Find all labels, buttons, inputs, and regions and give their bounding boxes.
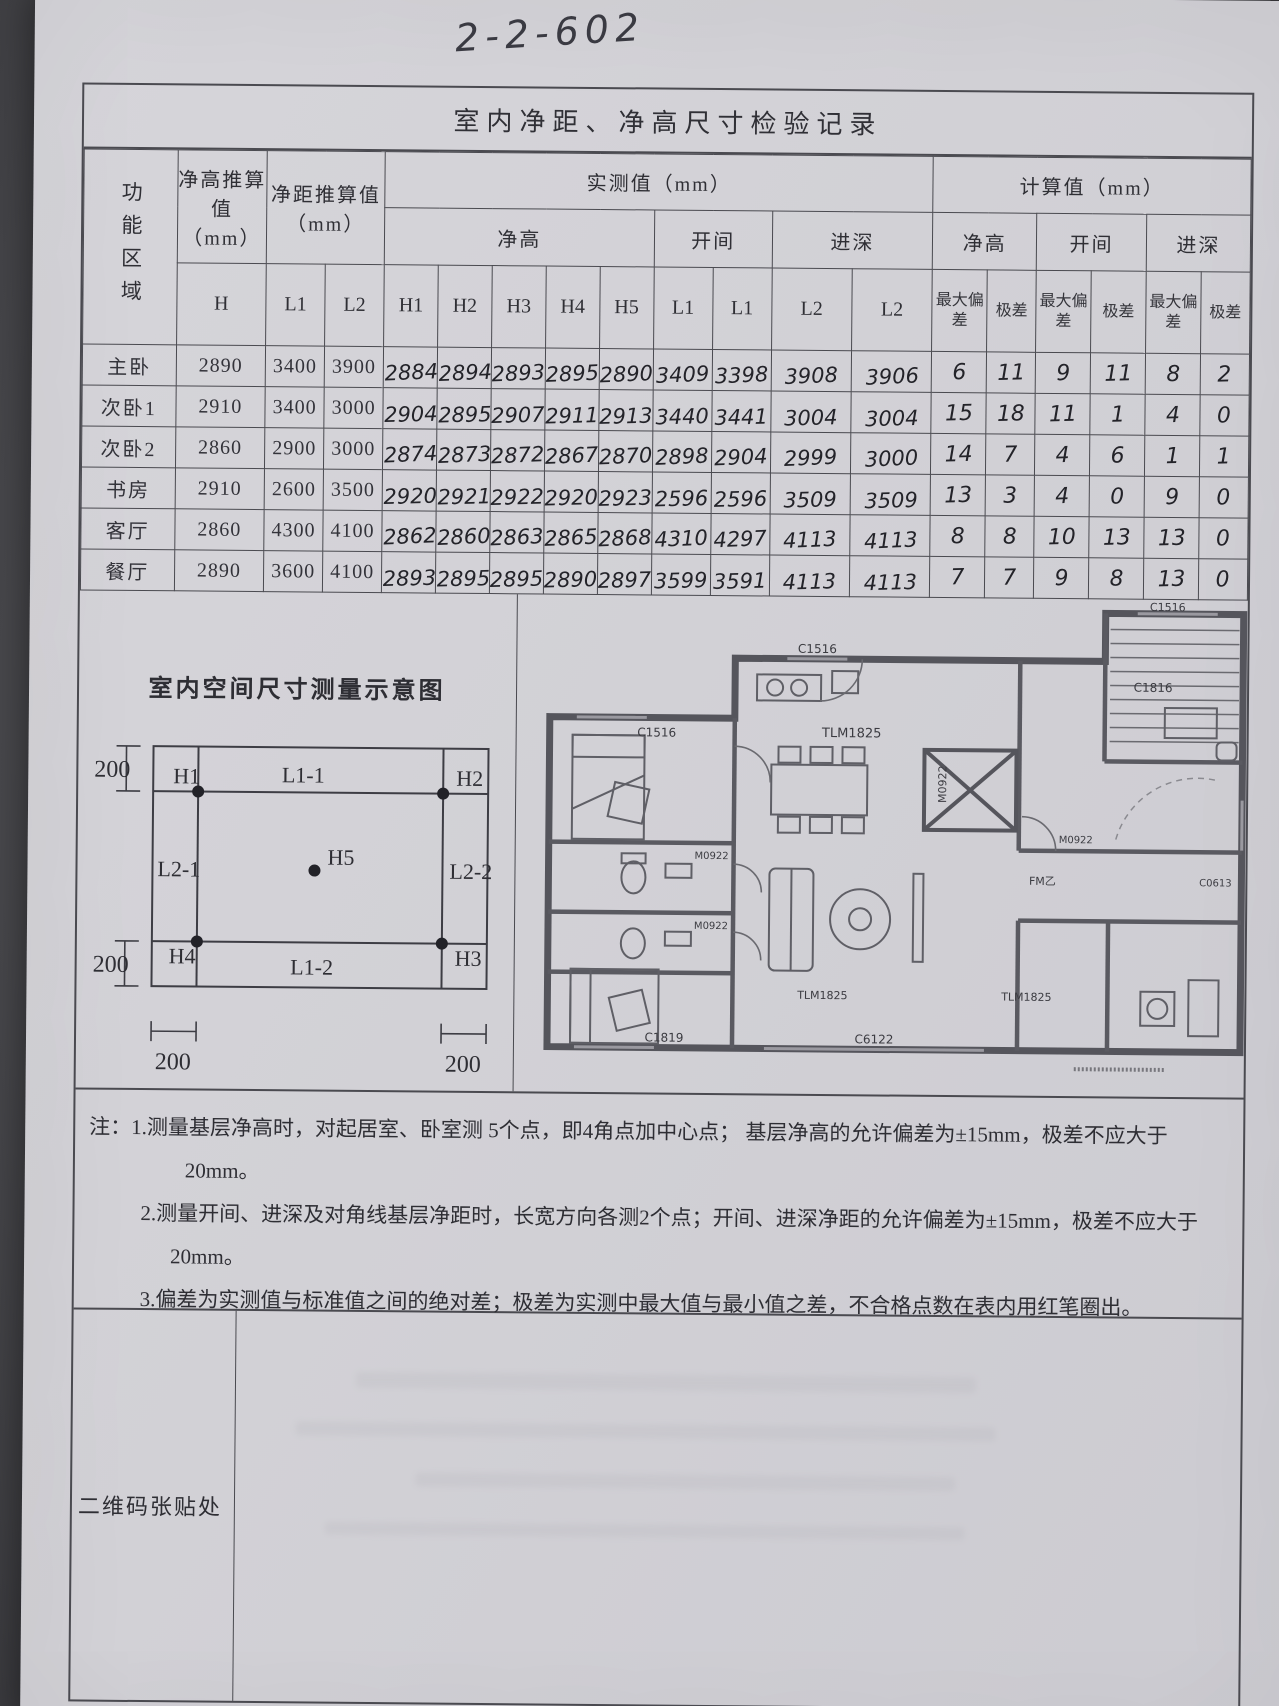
header-range-js: 极差 <box>1200 272 1250 354</box>
cell-calc5: 13 <box>1143 517 1199 559</box>
cell-area: 次卧2 <box>81 426 175 468</box>
plan-label-tlm1825-living: TLM1825 <box>796 989 847 1002</box>
middle-section: 室内空间尺寸测量示意图 <box>76 590 1248 1097</box>
cell-js2: 3004 <box>851 396 932 439</box>
coffee-table <box>830 889 891 950</box>
cell-h: 2860 <box>174 509 264 551</box>
cell-calc2: 7 <box>984 556 1034 598</box>
plan-label-c1816: C1816 <box>1134 681 1173 695</box>
cell-h3: 2893 <box>491 351 547 394</box>
header-l-est: 净距推算值（mm） <box>266 151 385 265</box>
measurement-diagram-cell: 室内空间尺寸测量示意图 <box>76 590 518 1091</box>
cell-h2: 2895 <box>435 557 490 599</box>
kitchen-counter <box>757 670 858 701</box>
header-maxdev-kj: 最大偏差 <box>1036 270 1092 352</box>
cell-l2: 3500 <box>323 469 382 511</box>
header-measured: 实测值（mm） <box>385 152 934 213</box>
cell-calc6: 2 <box>1200 353 1250 395</box>
cell-area: 书房 <box>81 467 175 509</box>
cell-kj1: 3440 <box>652 394 712 437</box>
header-H3: H3 <box>491 266 546 348</box>
cell-l1: 2900 <box>265 428 324 470</box>
header-calc-depth: 进深 <box>1146 214 1250 272</box>
notes-section: 注：1.测量基层净高时，对起居室、卧室测 5个点，即4角点加中心点； 基层净高的… <box>74 1087 1244 1317</box>
cell-calc5: 8 <box>1145 353 1201 395</box>
cell-calc2: 11 <box>986 351 1036 393</box>
form-title: 室内净距、净高尺寸检验记录 <box>453 100 882 141</box>
cell-h2: 2895 <box>437 393 492 435</box>
header-measured-bay: 开间 <box>654 210 772 268</box>
cell-area: 主卧 <box>82 344 176 386</box>
cell-h5: 2870 <box>598 434 654 477</box>
diagram-label-h4: H4 <box>169 943 196 968</box>
header-h-est: 净高推算值（mm） <box>177 150 267 264</box>
cell-h4: 2911 <box>544 394 599 436</box>
diagram-dim-top-left: 200 <box>94 757 130 783</box>
cell-calc5: 1 <box>1144 435 1200 477</box>
cell-kj1: 4310 <box>651 516 712 560</box>
cell-l1: 3600 <box>264 551 323 593</box>
header-H5: H5 <box>599 267 654 349</box>
header-H: H <box>176 263 266 346</box>
header-measured-clear-height: 净高 <box>384 208 654 267</box>
plan-label-m0922-bath1: M0922 <box>695 851 729 862</box>
diagram-label-h5: H5 <box>327 845 354 870</box>
bottom-section: 二维码张贴处 <box>70 1307 1241 1706</box>
cell-h5: 2868 <box>597 516 653 559</box>
header-range-kj: 极差 <box>1091 271 1147 353</box>
cell-l2: 3000 <box>324 428 383 470</box>
cell-h2: 2894 <box>437 350 493 393</box>
diagram-dim-bottom-a: 200 <box>155 1049 191 1075</box>
plan-label-m0922-vertical: M0922 <box>936 765 949 803</box>
cell-calc5: 9 <box>1144 476 1200 518</box>
header-H4: H4 <box>545 266 600 348</box>
diagram-label-l21: L2-1 <box>157 856 200 881</box>
cell-l1: 2600 <box>264 469 323 511</box>
cell-calc4: 1 <box>1090 393 1146 435</box>
diagram-label-h3: H3 <box>455 946 482 971</box>
plan-label-c1516-top: C1516 <box>798 642 837 656</box>
cell-l2: 3000 <box>324 387 383 429</box>
cell-h4: 2865 <box>543 515 599 558</box>
plan-label-m0922-bath2: M0922 <box>694 921 728 932</box>
cell-l2: 3900 <box>324 346 383 388</box>
cell-h4: 2895 <box>544 351 600 394</box>
cell-calc6: 0 <box>1199 394 1249 436</box>
cell-calc2: 3 <box>985 474 1035 516</box>
note-1: 注：1.测量基层净高时，对起居室、卧室测 5个点，即4角点加中心点； 基层净高的… <box>89 1106 1218 1202</box>
cell-kj2: 2904 <box>711 434 772 478</box>
plan-label-tlm1825-balcony: TLM1825 <box>1000 991 1051 1004</box>
cell-l1: 3400 <box>265 346 324 388</box>
cell-h2: 2873 <box>436 432 492 475</box>
header-calc-bay: 开间 <box>1036 213 1146 271</box>
cell-calc1: 6 <box>931 351 987 393</box>
cell-calc4: 8 <box>1088 557 1144 599</box>
cell-h2: 2860 <box>435 514 491 557</box>
cell-calc1: 13 <box>930 474 986 516</box>
tv-cabinet <box>913 874 924 962</box>
cell-area: 客厅 <box>81 508 175 550</box>
cell-h3: 2872 <box>490 433 546 476</box>
header-range-h: 极差 <box>987 270 1037 352</box>
cell-calc6: 0 <box>1198 558 1248 600</box>
cell-calc2: 7 <box>985 433 1035 475</box>
cell-calc5: 13 <box>1143 558 1199 600</box>
header-row-1: 功能区域 净高推算值（mm） 净距推算值（mm） 实测值（mm） 计算值（mm） <box>84 149 1251 215</box>
cell-js2: 4113 <box>849 517 931 561</box>
cell-calc4: 6 <box>1089 434 1145 476</box>
header-maxdev-js: 最大偏差 <box>1146 271 1202 353</box>
cell-calc1: 7 <box>929 556 985 598</box>
cell-calc6: 0 <box>1199 476 1249 518</box>
cell-h2: 2921 <box>436 475 491 517</box>
cell-h: 2910 <box>175 468 265 510</box>
toilet-1 <box>621 861 645 893</box>
cell-calc5: 4 <box>1144 394 1200 436</box>
cell-js1: 3908 <box>770 353 852 397</box>
photo-of-document: 2-2-602 室内净距、净高尺寸检验记录 功能区域 净高推算值（mm） 净距推… <box>0 0 1279 1706</box>
cell-calc4: 13 <box>1088 516 1144 558</box>
dining-table <box>771 747 868 834</box>
cell-calc4: 11 <box>1090 352 1146 394</box>
cell-h: 2890 <box>174 550 264 592</box>
cell-kj1: 3409 <box>652 352 713 396</box>
header-H2: H2 <box>438 265 493 347</box>
plan-label-c0613: C0613 <box>1199 878 1232 889</box>
cell-js2: 3906 <box>851 353 933 397</box>
cell-h4: 2867 <box>544 433 600 476</box>
cell-calc3: 9 <box>1033 557 1089 599</box>
floor-plan-cell: C1516 C1516 C1816 TLM1825 C1516 M0922 M0… <box>514 594 1249 1097</box>
cell-h1: 2874 <box>382 432 438 475</box>
cell-js1: 3509 <box>770 477 851 520</box>
inspection-form: 室内净距、净高尺寸检验记录 功能区域 净高推算值（mm） 净距推算值（mm） 实… <box>68 82 1254 1706</box>
header-calc-clear-height: 净高 <box>933 212 1037 270</box>
cell-calc3: 4 <box>1034 434 1090 476</box>
cell-l1: 3400 <box>265 387 324 429</box>
cell-calc6: 0 <box>1198 517 1248 559</box>
cell-kj2: 4297 <box>710 516 771 560</box>
header-calculated: 计算值（mm） <box>933 156 1251 215</box>
diagram-label-l22: L2-2 <box>449 859 492 884</box>
header-maxdev-h: 最大偏差 <box>932 269 988 351</box>
diagram-dim-bottom-b: 200 <box>445 1052 481 1078</box>
cell-calc3: 4 <box>1034 475 1090 517</box>
cell-calc2: 18 <box>986 392 1036 434</box>
cell-calc1: 8 <box>930 515 986 557</box>
cell-h1: 2893 <box>381 556 436 598</box>
cell-js1: 4113 <box>769 517 851 561</box>
cell-h1: 2884 <box>383 350 439 393</box>
header-kj-L1a: L1 <box>653 267 713 350</box>
study-desk <box>1164 708 1236 761</box>
washer <box>1140 980 1218 1037</box>
cell-l1: 4300 <box>264 510 323 552</box>
cell-h5: 2923 <box>598 476 653 518</box>
header-measured-depth: 进深 <box>772 211 933 269</box>
toilet-2 <box>621 928 645 958</box>
cell-h3: 2863 <box>489 515 545 558</box>
qr-paste-label: 二维码张贴处 <box>72 1488 222 1521</box>
cell-h1: 2920 <box>382 474 437 516</box>
cell-l2: 4100 <box>323 551 382 593</box>
header-js-L2b: L2 <box>852 269 933 352</box>
cell-kj2: 2596 <box>711 477 771 520</box>
header-L2: L2 <box>325 264 385 347</box>
paper-sheet: 2-2-602 室内净距、净高尺寸检验记录 功能区域 净高推算值（mm） 净距推… <box>20 0 1279 1706</box>
header-js-L2a: L2 <box>771 268 852 351</box>
cell-h: 2860 <box>175 427 265 469</box>
cell-calc2: 8 <box>985 515 1035 557</box>
cell-h: 2910 <box>175 386 265 428</box>
cell-kj1: 2596 <box>652 476 712 519</box>
cell-h3: 2922 <box>490 475 545 517</box>
cell-calc3: 11 <box>1035 393 1091 435</box>
floor-plan: C1516 C1516 C1816 TLM1825 C1516 M0922 M0… <box>514 594 1249 1097</box>
cell-l2: 4100 <box>323 510 382 552</box>
plan-label-c1516-bedroom: C1516 <box>637 725 676 739</box>
note-2: 2.测量开间、进深及对角线基层净距时，长宽方向各测2个点；开间、进深净距的允许偏… <box>140 1192 1217 1287</box>
cell-h5: 2890 <box>598 352 654 395</box>
measurement-points <box>191 785 449 949</box>
diagram-label-h2: H2 <box>456 766 483 791</box>
diagram-label-l11: L1-1 <box>282 762 325 787</box>
cell-calc1: 14 <box>930 433 986 475</box>
diagram-label-h1: H1 <box>173 763 200 788</box>
cell-js1: 3004 <box>770 395 851 438</box>
cell-calc1: 15 <box>931 392 987 434</box>
cell-kj2: 3441 <box>711 395 771 438</box>
cell-h: 2890 <box>176 345 266 387</box>
header-area: 功能区域 <box>83 149 178 345</box>
cell-js2: 3000 <box>850 435 932 479</box>
cell-calc6: 1 <box>1199 435 1249 477</box>
cell-area: 餐厅 <box>80 549 174 591</box>
header-L1: L1 <box>266 264 326 347</box>
diagram-dim-bottom-left: 200 <box>93 952 129 978</box>
qr-paste-cell: 二维码张贴处 <box>70 1309 236 1700</box>
measurement-diagram: 室内空间尺寸测量示意图 <box>76 590 517 1091</box>
cell-kj2: 3398 <box>711 352 772 396</box>
plan-label-m0922-hall: M0922 <box>1059 835 1093 846</box>
plan-label-c6122: C6122 <box>855 1032 894 1046</box>
measurement-table: 功能区域 净高推算值（mm） 净距推算值（mm） 实测值（mm） 计算值（mm）… <box>80 148 1252 600</box>
cell-h4: 2920 <box>544 476 599 518</box>
cell-h1: 2904 <box>383 392 438 434</box>
plan-label-c1819: C1819 <box>645 1030 684 1044</box>
stairs <box>1110 629 1240 742</box>
handwritten-doc-number: 2-2-602 <box>454 5 647 61</box>
diagram-label-l12: L1-2 <box>290 954 333 979</box>
plan-label-c1516-stair: C1516 <box>1150 601 1186 614</box>
cell-calc3: 9 <box>1035 352 1091 394</box>
cell-js2: 3509 <box>850 478 931 521</box>
cell-h5: 2913 <box>598 394 653 436</box>
empty-cell <box>233 1311 1241 1706</box>
plan-label-tlm1825-dining: TLM1825 <box>821 726 882 742</box>
cell-h1: 2862 <box>381 514 437 557</box>
cell-kj1: 2898 <box>652 434 713 478</box>
header-kj-L1b: L1 <box>712 267 772 350</box>
cell-calc3: 10 <box>1034 516 1090 558</box>
cell-h5: 2897 <box>597 558 652 600</box>
diagram-title: 室内空间尺寸测量示意图 <box>148 674 445 705</box>
cell-calc4: 0 <box>1089 475 1145 517</box>
header-H1: H1 <box>384 265 439 347</box>
header-row-3: H L1 L2 H1 H2 H3 H4 H5 L1 L1 L2 L2 最大偏差 … <box>83 262 1251 354</box>
cell-h3: 2907 <box>491 393 546 435</box>
form-title-row: 室内净距、净高尺寸检验记录 <box>84 84 1253 158</box>
plan-label-fm: FM乙 <box>1029 875 1056 888</box>
cell-js1: 2999 <box>770 435 852 479</box>
cell-area: 次卧1 <box>82 385 176 427</box>
